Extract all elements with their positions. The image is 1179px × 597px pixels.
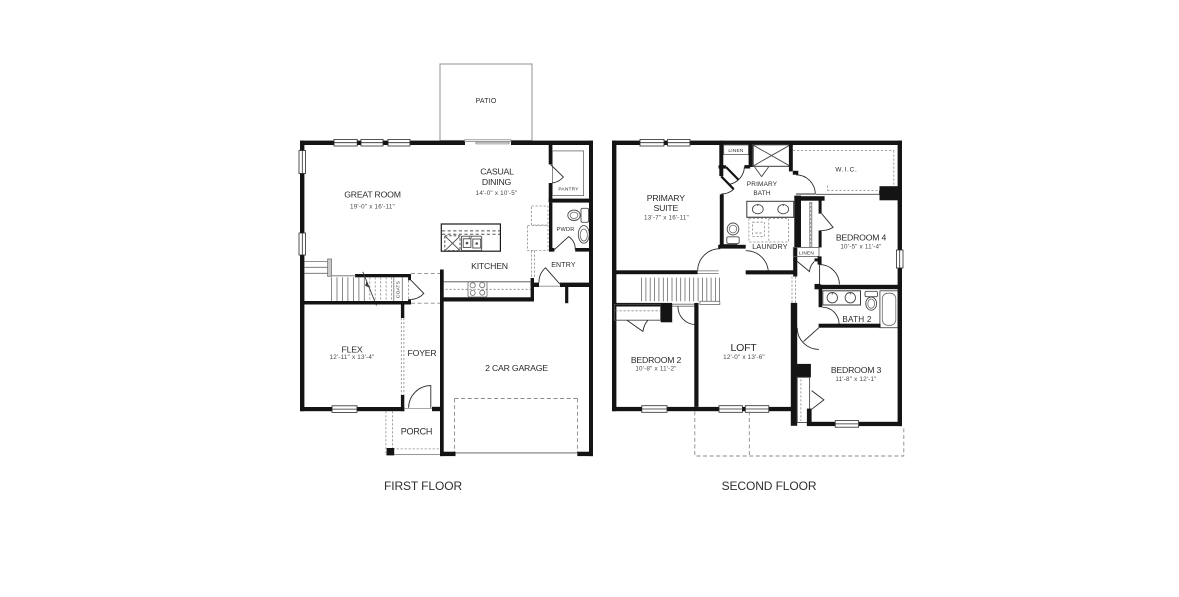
svg-text:LAUNDRY: LAUNDRY (752, 242, 788, 251)
svg-text:BEDROOM 2: BEDROOM 2 (631, 355, 682, 365)
svg-text:BEDROOM 4: BEDROOM 4 (836, 232, 887, 242)
svg-text:KITCHEN: KITCHEN (471, 261, 508, 271)
svg-text:BATH: BATH (753, 190, 771, 197)
svg-text:DINING: DINING (482, 177, 512, 187)
svg-text:ENTRY: ENTRY (551, 262, 576, 269)
svg-text:SUITE: SUITE (654, 203, 679, 213)
svg-text:FIRST FLOOR: FIRST FLOOR (384, 479, 462, 493)
svg-text:PORCH: PORCH (401, 427, 433, 437)
svg-text:19'-0" x 16'-11": 19'-0" x 16'-11" (350, 204, 395, 211)
svg-text:FLEX: FLEX (342, 344, 363, 354)
svg-text:PANTRY: PANTRY (558, 186, 579, 192)
svg-text:LINEN: LINEN (728, 148, 743, 154)
svg-text:10'-8" x 11'-2": 10'-8" x 11'-2" (635, 366, 676, 373)
svg-text:BATH 2: BATH 2 (842, 315, 872, 324)
svg-text:FOYER: FOYER (408, 348, 437, 358)
svg-text:GREAT ROOM: GREAT ROOM (344, 190, 401, 200)
svg-text:PRIMARY: PRIMARY (647, 193, 685, 203)
svg-text:W.I.C.: W.I.C. (835, 167, 857, 174)
svg-text:LINEN: LINEN (799, 250, 814, 256)
svg-text:LOFT: LOFT (730, 342, 757, 354)
svg-text:14'-0" x 10'-5": 14'-0" x 10'-5" (476, 190, 518, 197)
svg-text:CASUAL: CASUAL (480, 167, 514, 177)
svg-text:PWDR: PWDR (557, 227, 575, 233)
svg-text:PRIMARY: PRIMARY (747, 181, 778, 188)
svg-text:11'-8" x 12'-1": 11'-8" x 12'-1" (835, 376, 876, 383)
svg-text:BEDROOM 3: BEDROOM 3 (831, 365, 882, 375)
svg-text:10'-5" x 11'-4": 10'-5" x 11'-4" (840, 244, 881, 251)
svg-text:PATIO: PATIO (476, 98, 497, 105)
svg-text:13'-7" x 16'-11": 13'-7" x 16'-11" (644, 214, 689, 221)
svg-text:SECOND FLOOR: SECOND FLOOR (722, 479, 817, 493)
svg-text:12'-0" x 13'-6": 12'-0" x 13'-6" (723, 354, 765, 361)
svg-text:COATS: COATS (396, 281, 402, 298)
svg-text:12'-11" x 13'-4": 12'-11" x 13'-4" (330, 354, 375, 361)
svg-text:2 CAR GARAGE: 2 CAR GARAGE (485, 363, 548, 373)
